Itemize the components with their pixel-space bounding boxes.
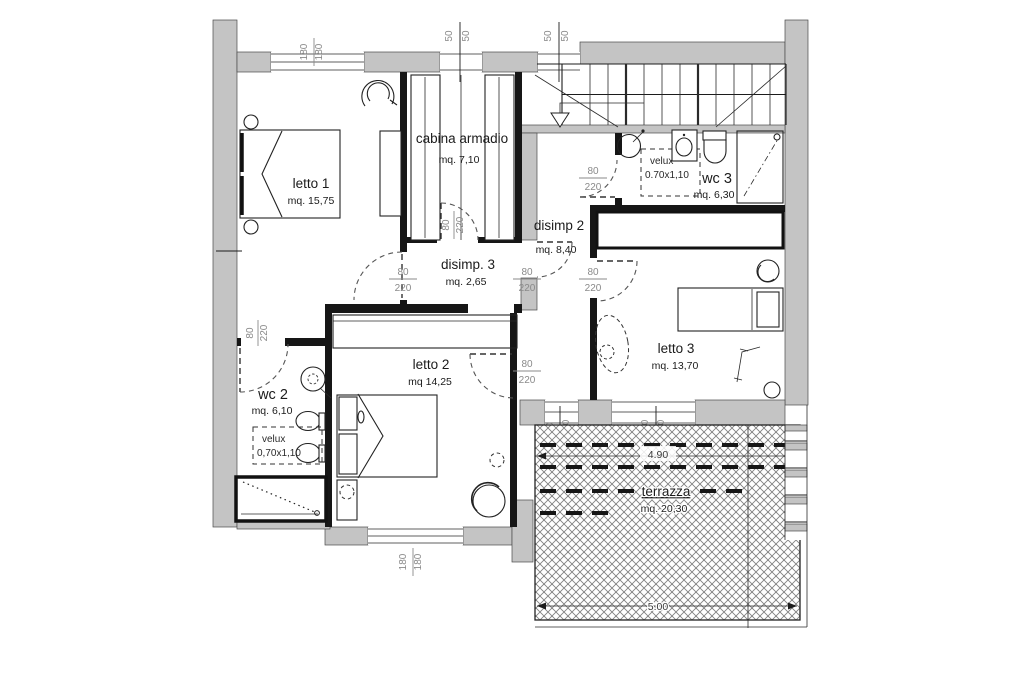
wardrobe-right-icon [485, 75, 514, 240]
room-area-wc3: mq. 6,30 [694, 189, 735, 201]
room-area-disimp2: mq. 8,40 [536, 244, 577, 256]
bedside-lamp1-icon [244, 115, 258, 129]
room-label-terrazza: terrazza [642, 484, 691, 499]
dim-80: 80 [587, 166, 599, 177]
letto2: letto 2 mq 14,25 [333, 315, 517, 520]
window-180-top: 180 180 [271, 38, 364, 72]
dim-80: 80 [441, 219, 452, 231]
dim-220: 220 [455, 216, 466, 233]
terrace: 4.90 5.00 terrazza mq. 20,30 [535, 405, 807, 628]
room-area-disimp3: mq. 2,65 [446, 276, 487, 288]
room-label-disimp2: disimp 2 [534, 218, 584, 233]
stairs-direction-arrow [551, 103, 644, 127]
wc2-roof-box [236, 477, 326, 521]
wall-top-seg-a [237, 52, 271, 72]
wall-letto2-top-b [514, 304, 522, 313]
dim-220: 220 [519, 375, 536, 386]
letto1: letto 1 mq. 15,75 [240, 80, 401, 234]
wall-wc2-top [285, 338, 325, 346]
dim-220: 220 [519, 283, 536, 294]
letto2-wardrobe-icon [333, 315, 517, 348]
dim-80: 80 [397, 267, 409, 278]
floor-plan-page: 180 180 50 50 50 50 180 180 [0, 0, 1024, 682]
dim-220: 220 [259, 324, 270, 341]
wc2-velux-size: 0,70x1,10 [257, 448, 301, 459]
wall-letto3-left-b [590, 298, 597, 400]
stairs [535, 64, 786, 127]
wc2-velux: velux 0,70x1,10 [253, 427, 322, 464]
room-label-letto3: letto 3 [658, 341, 695, 356]
bed3-icon [678, 288, 783, 331]
wall-top-stairs [580, 42, 785, 64]
letto3: letto 3 mq. 13,70 [591, 212, 783, 398]
room-area-letto1: mq. 15,75 [288, 195, 335, 207]
disimp3: disimp. 3 mq. 2,65 [441, 257, 495, 288]
window-50-a: 50 50 [440, 22, 482, 82]
deck-row-4 [540, 511, 608, 515]
dim-door-letto1: 80 220 [389, 267, 417, 294]
stairs-break-line-right [716, 66, 786, 127]
dim-window-50a-1: 50 [444, 30, 455, 42]
room-label-wc2: wc 2 [257, 387, 288, 403]
dim-220: 220 [585, 283, 602, 294]
wall-terrace-seg-c [695, 400, 785, 425]
dim-220: 220 [395, 283, 412, 294]
floor-plan-drawing: 180 180 50 50 50 50 180 180 [0, 0, 1024, 682]
dim-window-top-180a: 180 [299, 43, 310, 60]
dim-terrace-width-bottom: 5.00 [648, 601, 669, 613]
room-area-wc2: mq. 6,10 [252, 405, 293, 417]
dim-door-wc3: 80 220 [579, 166, 607, 193]
wall-terrace-seg-a [520, 400, 545, 425]
disimp2: disimp 2 mq. 8,40 [534, 218, 584, 256]
wall-left [213, 20, 237, 527]
letto1-dresser-icon [380, 131, 401, 216]
window-180-bottom: 180 180 [368, 527, 463, 576]
dim-door-wc2-rotated: 80 220 [245, 320, 270, 346]
dim-80: 80 [245, 327, 256, 339]
bedside-lamp2-icon [244, 220, 258, 234]
window-50-b: 50 50 [538, 22, 580, 82]
wc3-shower-icon [737, 131, 783, 203]
wardrobe-left-icon [411, 75, 440, 240]
wc3-toilet-icon [703, 131, 726, 163]
letto1-chair-icon [362, 80, 397, 106]
dim-window-top-180b: 180 [314, 43, 325, 60]
dim-80: 80 [521, 359, 533, 370]
wall-top-seg-b [364, 52, 440, 72]
room-area-cabina: mq. 7,10 [439, 154, 480, 166]
wall-cabina-right [515, 72, 522, 243]
letto2-bedside-icon [337, 480, 357, 520]
dim-window-50a-2: 50 [461, 30, 472, 42]
letto3-wardrobe-icon [597, 212, 783, 248]
stairs-break-line-left [535, 75, 618, 127]
dim-terrace-width-top: 4.90 [648, 449, 669, 461]
wc2-toilet-icon [296, 412, 325, 431]
cabina-armadio: cabina armadio mq. 7,10 [411, 75, 514, 240]
letto2-armchair-icon [472, 483, 505, 517]
bed2-icon [337, 394, 437, 478]
room-area-letto3: mq. 13,70 [652, 360, 699, 372]
wall-bottom-seg-a [325, 527, 368, 545]
door-wc2 [240, 344, 288, 392]
dim-80: 80 [587, 267, 599, 278]
letto3-desk-icon [734, 347, 780, 398]
room-label-disimp3: disimp. 3 [441, 257, 495, 272]
dim-door-letto2: 80 220 [513, 359, 541, 386]
dim-door-cabina-rotated: 80 220 [441, 211, 466, 239]
wc3: velux 0.70x1,10 wc 3 mq. 6,30 [618, 129, 784, 203]
wc2-velux-label: velux [262, 434, 285, 445]
room-area-terrazza: mq. 20,30 [641, 503, 688, 515]
wall-top-seg-c [482, 52, 538, 72]
wc3-velux-label: velux [650, 156, 673, 167]
dim-220: 220 [585, 182, 602, 193]
wc2: velux 0,70x1,10 wc 2 mq. 6,10 [236, 367, 331, 521]
wall-letto2-top-a [325, 304, 468, 313]
dim-window-bottom-180b: 180 [413, 553, 424, 570]
dim-window-bottom-180a: 180 [398, 553, 409, 570]
wall-letto2-right [510, 313, 517, 527]
wc3-basin-icon [672, 130, 697, 161]
room-label-letto2: letto 2 [413, 357, 450, 372]
letto3-lamp-icon [757, 260, 779, 282]
wall-terrace-seg-b [578, 400, 612, 425]
room-label-wc3: wc 3 [701, 171, 732, 187]
dim-80: 80 [521, 267, 533, 278]
room-label-cabina: cabina armadio [416, 131, 508, 146]
wall-right [785, 20, 808, 405]
room-area-letto2: mq 14,25 [408, 376, 452, 388]
door-letto2 [470, 354, 514, 398]
wall-wc2-top-stub [237, 338, 241, 346]
wc3-velux-size: 0.70x1,10 [645, 170, 689, 181]
dim-door-letto3: 80 220 [579, 267, 607, 294]
door-letto3 [597, 261, 637, 301]
room-label-letto1: letto 1 [293, 176, 330, 191]
letto2-stool-icon [490, 453, 504, 467]
wall-wc3-left-b [615, 198, 622, 205]
letto3-plant-icon [591, 313, 633, 376]
wall-bottom-seg-b [463, 527, 512, 545]
dim-window-50b-2: 50 [560, 30, 571, 42]
dim-window-50b-1: 50 [543, 30, 554, 42]
